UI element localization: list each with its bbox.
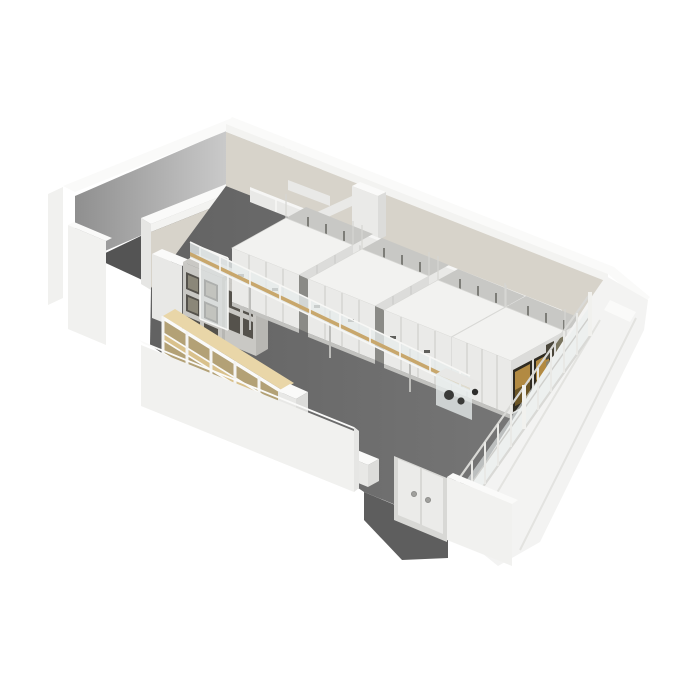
door-leaf-right [422, 469, 443, 534]
door-knob-left [411, 491, 416, 496]
art-storage-room-render [0, 0, 700, 700]
front-wall-end-cap [354, 427, 359, 492]
nw-wall-outer-face [48, 187, 63, 305]
machine-motor [457, 397, 464, 404]
divider-wall-end [141, 218, 151, 290]
wall-column-side [378, 192, 386, 240]
door-leaf-left [398, 459, 420, 524]
wheel-knob [472, 389, 478, 395]
machine-motor [444, 390, 454, 400]
handle [424, 350, 430, 353]
render-canvas [0, 0, 700, 700]
nw-wall-pillar [68, 225, 106, 345]
door-knob-right [425, 497, 430, 502]
